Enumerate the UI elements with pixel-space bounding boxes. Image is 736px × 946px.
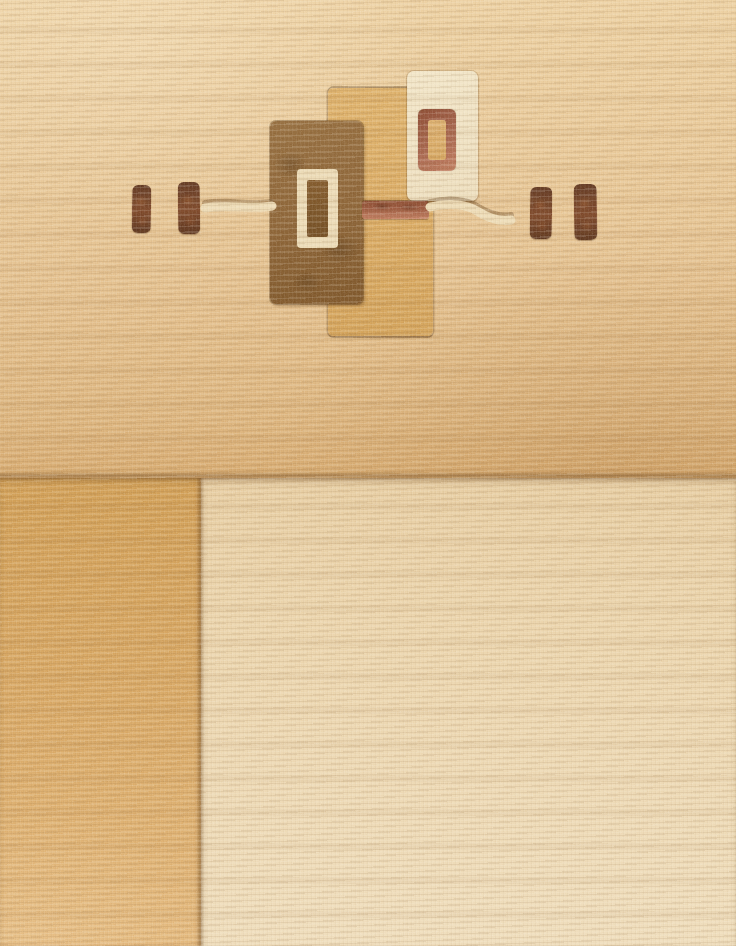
- rust-bar: [362, 201, 429, 219]
- gold-block: [0, 478, 201, 946]
- horizontal-seam: [0, 472, 736, 480]
- dash-left-2: [178, 182, 201, 234]
- cream-rectangle-inner-rust-frame: [418, 109, 456, 171]
- vertical-seam: [196, 478, 204, 946]
- rug-photo: [0, 0, 736, 946]
- dash-right-2: [574, 184, 598, 240]
- rust-frame-hole: [428, 120, 446, 160]
- brown-rectangle-inner-frame: [297, 169, 338, 248]
- dash-right-1: [530, 187, 553, 239]
- dash-left-1: [132, 185, 152, 233]
- brown-frame-hole: [307, 180, 328, 237]
- cream-block: [201, 478, 736, 946]
